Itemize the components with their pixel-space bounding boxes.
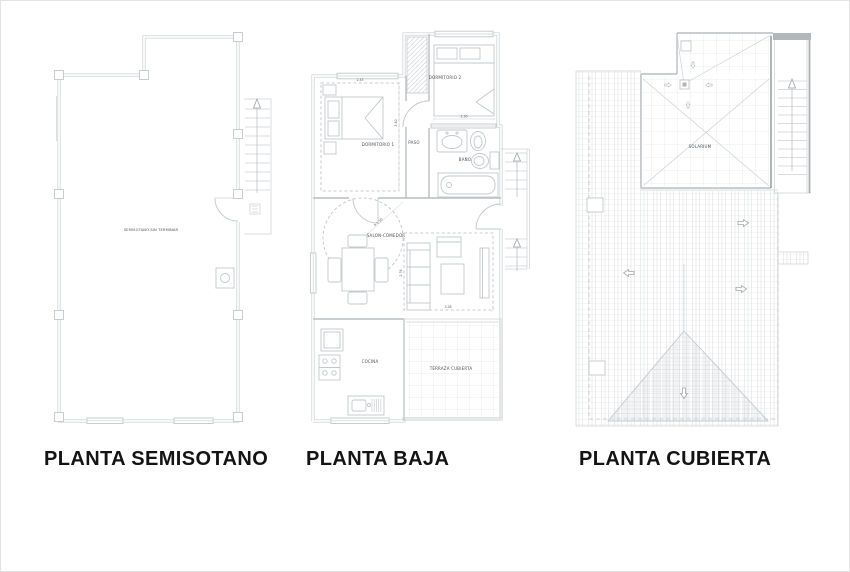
door-arc-salon [353, 198, 378, 223]
nightstand [324, 142, 336, 154]
roof-chimney [589, 361, 605, 375]
plan-baja: DORMITORIO 1 2.45 3.40 DORMITORIO 2 2.30 [311, 31, 530, 423]
coffee-table [441, 264, 464, 294]
solarium-label: SOLARIUM [689, 144, 712, 149]
bano: BAÑO [437, 130, 499, 197]
dormitorio1: DORMITORIO 1 2.45 3.40 [320, 73, 401, 191]
dormitorio2-label: DORMITORIO 2 [429, 75, 462, 80]
armchair [437, 237, 461, 257]
chair [375, 258, 388, 282]
bed-double-2 [434, 45, 494, 116]
baja-stairwell-hatch [407, 37, 429, 93]
nightstand [323, 85, 336, 95]
chair [348, 292, 367, 304]
dim-salon-depth: 2.76 [399, 269, 403, 276]
dormitorio1-label: DORMITORIO 1 [362, 142, 395, 147]
semisotano-stairs [244, 99, 271, 234]
title-planta-semisotano: PLANTA SEMISOTANO [44, 448, 268, 471]
roof-chimney [587, 198, 603, 212]
stairs-up-arrow-icon [514, 239, 521, 247]
semisotano-columns [55, 33, 243, 422]
cocina-label: COCINA [362, 359, 379, 364]
dim-dorm1-depth: 3.40 [394, 119, 398, 126]
bano-label: BAÑO [459, 157, 471, 162]
tv-cabinet [480, 248, 489, 298]
door-arc-dorm2 [403, 101, 429, 127]
chair [328, 258, 341, 282]
paso-label: PASO [408, 140, 419, 145]
solarium: SOLARIUM [641, 33, 773, 188]
stairs-up-arrow-icon [254, 99, 261, 108]
salon-label: SALON-COMEDOR [367, 233, 406, 238]
plan-semisotano: SEMISOTANO SIN TERMINAR [55, 33, 272, 424]
salon-comedor: R 1.50 SALON-COMEDOR 3.26 2.76 [311, 198, 502, 312]
title-planta-cubierta: PLANTA CUBIERTA [579, 448, 771, 471]
cubierta-stairs [773, 33, 811, 193]
semisotano-room-label: SEMISOTANO SIN TERMINAR [124, 228, 179, 232]
dining-table [342, 248, 374, 291]
door-arc-salon-east [476, 204, 501, 229]
toilet-tank [490, 152, 499, 169]
stairs-up-arrow-icon [789, 79, 796, 88]
plan-cubierta: SOLARIUM [576, 33, 811, 426]
stairs-up-arrow-icon [514, 153, 521, 161]
dim-dorm1-width: 2.45 [356, 78, 363, 82]
floorplan-drawing: SEMISOTANO SIN TERMINAR [1, 1, 850, 572]
chair [348, 235, 367, 247]
title-planta-baja: PLANTA BAJA [306, 448, 449, 471]
semisotano-door [215, 198, 238, 221]
baja-exterior-stairs [501, 149, 530, 271]
floorplan-sheet: SEMISOTANO SIN TERMINAR [0, 0, 850, 572]
semisotano-boiler [216, 268, 234, 288]
dim-salon-width: 3.26 [444, 305, 451, 309]
cocina: COCINA [319, 329, 389, 424]
dim-dorm2-width: 2.30 [460, 115, 467, 119]
terraza-cubierta: TERRAZA CUBIERTA [404, 319, 501, 419]
terraza-label: TERRAZA CUBIERTA [429, 366, 473, 371]
